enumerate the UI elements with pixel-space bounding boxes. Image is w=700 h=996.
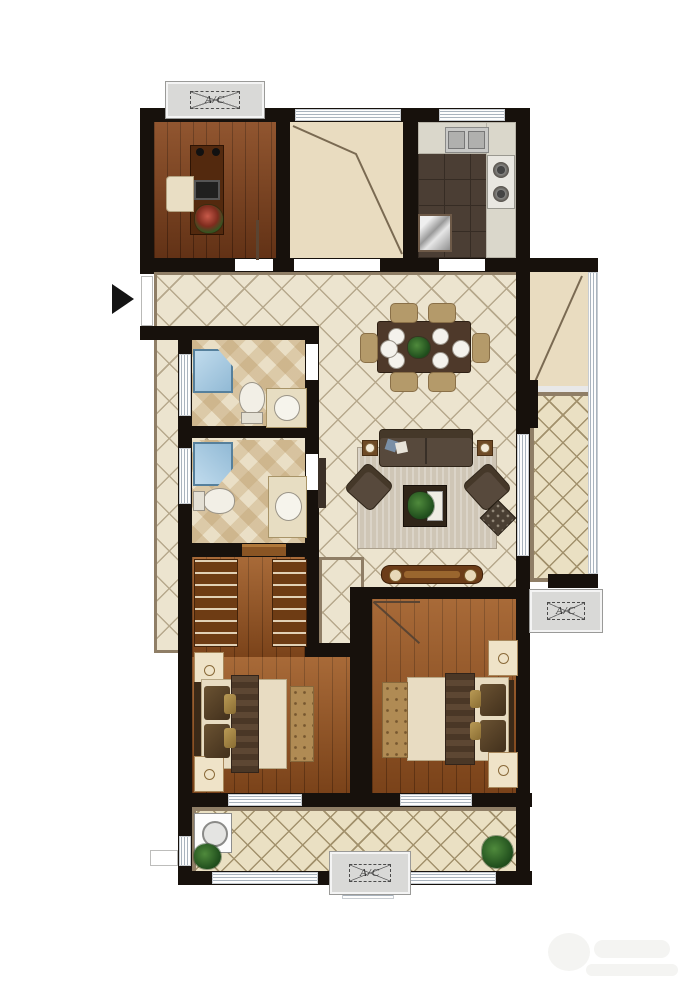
sink-basin-right bbox=[468, 131, 485, 149]
plate bbox=[432, 328, 449, 345]
balcony-right-floor bbox=[530, 392, 596, 582]
window-balcony-left bbox=[179, 836, 191, 866]
wall-right-upper bbox=[516, 108, 530, 274]
dining-chair-bottom-1 bbox=[390, 372, 418, 392]
bedroom2-pillow-accent-1 bbox=[470, 690, 481, 708]
toilet-lower bbox=[193, 488, 233, 514]
watermark bbox=[548, 933, 590, 971]
window-bathroom-lower bbox=[179, 448, 191, 504]
balcony-right-threshold bbox=[530, 386, 588, 392]
bedroom2-pillow-2 bbox=[480, 720, 506, 752]
vanity-basin bbox=[275, 492, 302, 521]
kitchen-refrigerator bbox=[420, 216, 450, 250]
master-nightstand-lower bbox=[194, 756, 224, 792]
master-bed-headboard bbox=[194, 682, 202, 766]
bedroom2-bench bbox=[382, 682, 408, 758]
ac-platform-right: A/C bbox=[530, 590, 602, 632]
sofa-cushion-divider bbox=[425, 438, 427, 464]
ac-platform-top: A/C bbox=[166, 82, 264, 118]
vanity-basin bbox=[274, 395, 300, 421]
coffee-table-plant bbox=[408, 492, 434, 519]
toilet-bowl bbox=[203, 488, 235, 514]
dining-chair-top-2 bbox=[428, 303, 456, 323]
wall-balcony-right-mid bbox=[516, 380, 538, 428]
wall-study-right bbox=[276, 108, 290, 272]
sofa-throw-pillow-white bbox=[395, 441, 408, 454]
study-lamp-left bbox=[196, 148, 204, 156]
ac-label-bottom: A/C bbox=[349, 864, 391, 882]
dining-chair-left bbox=[360, 333, 378, 363]
wall-nook-left bbox=[305, 543, 319, 657]
tv-console-knob-right bbox=[464, 569, 477, 582]
kitchen-stove bbox=[488, 156, 514, 208]
toilet-tank bbox=[193, 491, 205, 511]
sofa bbox=[380, 430, 472, 466]
wall-balcony-right-bottom bbox=[548, 574, 598, 588]
master-bench bbox=[290, 686, 314, 762]
flex-room-line bbox=[290, 122, 403, 258]
wall-hall-bottom bbox=[140, 326, 319, 340]
door-bathroom-upper bbox=[306, 344, 318, 380]
balcony-plant-right bbox=[482, 836, 513, 868]
balcony-plant-left bbox=[194, 844, 221, 869]
dining-chair-bottom-2 bbox=[428, 372, 456, 392]
door-master-balcony bbox=[228, 794, 302, 806]
plate bbox=[452, 340, 470, 358]
balcony-right-divider-line bbox=[530, 272, 588, 386]
bedroom2-bed-runner bbox=[446, 674, 474, 764]
bedroom2-pillow-accent-2 bbox=[470, 722, 481, 740]
study-flower-plant bbox=[195, 205, 223, 233]
vanity-upper bbox=[266, 388, 307, 428]
window-living-balcony-door bbox=[517, 434, 529, 556]
toilet-tank bbox=[241, 412, 263, 424]
stove-burner-2 bbox=[493, 186, 509, 202]
door-bedroom2-balcony bbox=[400, 794, 472, 806]
drain-box bbox=[150, 850, 178, 866]
balcony-right-window bbox=[588, 272, 598, 574]
sink-basin-left bbox=[448, 131, 465, 149]
stove-burner-1 bbox=[493, 162, 509, 178]
bedroom2-door-line bbox=[374, 601, 420, 603]
kitchen-sink bbox=[446, 128, 488, 152]
master-wardrobe-right bbox=[272, 559, 307, 647]
master-pillow-accent-1 bbox=[224, 694, 236, 714]
dining-chair-top-1 bbox=[390, 303, 418, 323]
side-table-lamp-left bbox=[362, 440, 378, 456]
plate bbox=[380, 340, 398, 358]
wall-right-lower bbox=[516, 588, 530, 885]
tv-console-slat bbox=[404, 571, 460, 578]
bedroom2-pillow-1 bbox=[480, 684, 506, 716]
entry-door bbox=[141, 276, 153, 326]
plate bbox=[432, 352, 449, 369]
wall-left-upper bbox=[140, 108, 154, 274]
study-laptop bbox=[194, 180, 220, 200]
toilet-upper bbox=[238, 382, 264, 424]
study-door-leaf bbox=[256, 220, 259, 260]
wall-bedroom2-left bbox=[350, 587, 372, 805]
window-flex-top bbox=[295, 109, 401, 121]
door-bathroom-lower bbox=[306, 454, 318, 490]
toilet-bowl bbox=[239, 382, 265, 414]
master-pillow-accent-2 bbox=[224, 728, 236, 748]
window-kitchen-top bbox=[439, 109, 505, 121]
door-study bbox=[235, 259, 273, 271]
dining-centerpiece bbox=[408, 337, 430, 358]
door-kitchen bbox=[439, 259, 485, 271]
tall-cabinet bbox=[318, 458, 326, 508]
window-balcony-bottom-1 bbox=[212, 872, 318, 884]
door-master-threshold bbox=[242, 544, 286, 556]
bedroom2-nightstand-upper bbox=[488, 640, 518, 676]
study-lamp-right bbox=[212, 148, 220, 156]
vanity-lower bbox=[268, 476, 307, 538]
window-balcony-bottom-2 bbox=[402, 872, 496, 884]
dining-chair-right bbox=[472, 333, 490, 363]
bedroom2-nightstand-lower bbox=[488, 752, 518, 788]
opening-flex-room bbox=[294, 259, 380, 271]
ac-platform-bottom: A/C bbox=[330, 852, 410, 894]
master-bed-runner bbox=[232, 676, 258, 772]
wall-bedroom2-top bbox=[350, 587, 530, 599]
ac-label-top: A/C bbox=[190, 91, 240, 109]
entry-arrow-icon bbox=[112, 284, 134, 314]
study-chair bbox=[166, 176, 194, 212]
watermark bbox=[594, 940, 670, 958]
floor-plan-canvas: A/C A/C A/C bbox=[0, 0, 700, 996]
side-table-lamp-right bbox=[477, 440, 493, 456]
wall-flex-right bbox=[403, 108, 418, 272]
tv-console-knob-left bbox=[389, 569, 402, 582]
window-bathroom-upper bbox=[179, 354, 191, 416]
ac-label-right: A/C bbox=[547, 602, 585, 620]
master-wardrobe-left bbox=[194, 559, 238, 647]
watermark bbox=[586, 964, 678, 976]
tv-console bbox=[382, 566, 482, 583]
